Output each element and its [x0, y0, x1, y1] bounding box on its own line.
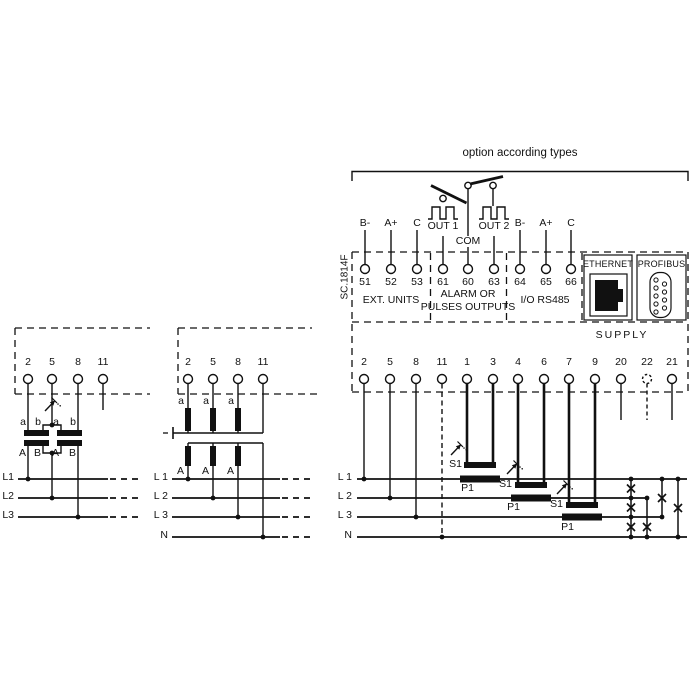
io-label-out2: OUT 2 — [479, 221, 510, 232]
rj45-icon — [595, 280, 623, 311]
io-label-b-minus-rs485: B- — [515, 218, 526, 229]
wiring-diagram-page: option according types SC.1814F B- A+ C … — [0, 0, 700, 700]
section-label-profibus: PROFIBUS — [638, 260, 686, 269]
d2-line-l3: L 3 — [144, 510, 168, 521]
diagram-linework — [0, 0, 700, 700]
section-label-ext-units: EXT. UNITS — [363, 295, 420, 306]
terminal-number-4: 4 — [515, 357, 521, 368]
junction-dots — [26, 423, 681, 540]
terminal-number-53: 53 — [411, 277, 423, 288]
line-label-l2-main: L 2 — [328, 491, 352, 502]
io-label-com: COM — [454, 236, 483, 247]
transformer-winding-bar — [185, 408, 241, 431]
line-label-n-main: N — [328, 530, 352, 541]
fuse-icon — [627, 485, 682, 532]
terminal-number-22: 22 — [641, 357, 653, 368]
terminal-number-7: 7 — [566, 357, 572, 368]
d1-terminal-5: 5 — [49, 357, 55, 368]
terminal-number-2: 2 — [361, 357, 367, 368]
terminal-circles-top — [361, 265, 576, 274]
d2-terminal-5: 5 — [210, 357, 216, 368]
d2-pri-a3: A — [220, 466, 234, 477]
terminal-number-64: 64 — [514, 277, 526, 288]
terminal-number-8: 8 — [413, 357, 419, 368]
d2-sec-a1: a — [170, 396, 184, 407]
ct1-s1-label: S1 — [440, 459, 462, 470]
section-label-supply: SUPPLY — [596, 330, 649, 341]
line-label-l3-main: L 3 — [328, 510, 352, 521]
section-label-alarm-2: PULSES OUTPUTS — [421, 302, 516, 313]
transformer-winding-bar — [24, 430, 82, 446]
io-label-b-minus-ext: B- — [360, 218, 371, 229]
terminal-number-6: 6 — [541, 357, 547, 368]
terminal-number-66: 66 — [565, 277, 577, 288]
section-label-rs485: I/O RS485 — [520, 295, 569, 306]
terminal-number-52: 52 — [385, 277, 397, 288]
d2-line-l1: L 1 — [144, 472, 168, 483]
ct-windings — [460, 462, 602, 521]
d1-sec-a1: a — [12, 417, 26, 428]
d1-line-l3: L3 — [0, 510, 14, 521]
d2-line-n: N — [144, 530, 168, 541]
terminal-number-61: 61 — [437, 277, 449, 288]
section-label-alarm-1: ALARM OR — [441, 289, 496, 300]
transformer-winding-bar — [185, 446, 241, 466]
io-label-a-plus-rs485: A+ — [539, 218, 552, 229]
earth-tick-icon — [163, 427, 173, 439]
polarity-arrow-icon — [45, 398, 61, 412]
terminal-number-9: 9 — [592, 357, 598, 368]
terminal-number-60: 60 — [462, 277, 474, 288]
d2-pri-a2: A — [195, 466, 209, 477]
d1-sec-b1: b — [27, 417, 41, 428]
terminal-number-5: 5 — [387, 357, 393, 368]
d1-line-l1: L1 — [0, 472, 14, 483]
io-label-c-rs485: C — [567, 218, 575, 229]
terminal-number-20: 20 — [615, 357, 627, 368]
d1-sec-b2: b — [62, 417, 76, 428]
d1-line-l2: L2 — [0, 491, 14, 502]
section-label-ethernet: ETHERNET — [583, 260, 633, 269]
ct3-s1-label: S1 — [541, 499, 563, 510]
d1-pri-b1: B — [27, 448, 41, 459]
d1-terminal-11: 11 — [98, 357, 109, 368]
terminal-number-11: 11 — [437, 357, 448, 368]
polarity-arrow-icon — [451, 442, 467, 456]
io-label-a-plus-ext: A+ — [384, 218, 397, 229]
terminal-circles-bottom — [360, 375, 677, 384]
terminal-leads-bottom — [364, 384, 672, 538]
d2-pri-a1: A — [170, 466, 184, 477]
d2-sec-a2: a — [195, 396, 209, 407]
d2-line-l2: L 2 — [144, 491, 168, 502]
d2-sec-a3: a — [220, 396, 234, 407]
d1-sec-a2: a — [45, 417, 59, 428]
d2-terminal-8: 8 — [235, 357, 241, 368]
line-label-l1-main: L 1 — [328, 472, 352, 483]
terminal-number-21: 21 — [666, 357, 678, 368]
terminal-number-3: 3 — [490, 357, 496, 368]
terminal-number-51: 51 — [359, 277, 371, 288]
terminal-number-1: 1 — [464, 357, 470, 368]
polarity-arrow-icon — [507, 461, 523, 475]
polarity-arrow-icon — [557, 481, 573, 495]
io-label-c-ext: C — [413, 218, 421, 229]
d1-pri-a2: A — [45, 448, 59, 459]
db9-icon — [650, 273, 671, 318]
ct1-p1-label: P1 — [452, 483, 474, 494]
d1-pri-b2: B — [62, 448, 76, 459]
d2-terminal-11: 11 — [258, 357, 269, 368]
pulse-icon-out1 — [428, 207, 458, 219]
option-title: option according types — [462, 148, 577, 160]
terminal-number-65: 65 — [540, 277, 552, 288]
ct2-p1-label: P1 — [498, 502, 520, 513]
fuse-links — [627, 479, 682, 537]
io-label-out1: OUT 1 — [428, 221, 459, 232]
ct2-s1-label: S1 — [490, 479, 512, 490]
model-number: SC.1814F — [340, 254, 351, 299]
option-bracket — [352, 172, 688, 182]
d2-terminal-2: 2 — [185, 357, 191, 368]
ct3-p1-label: P1 — [552, 522, 574, 533]
d1-pri-a1: A — [12, 448, 26, 459]
d1-terminal-2: 2 — [25, 357, 31, 368]
pulse-icon-out2 — [479, 207, 509, 219]
d1-terminal-8: 8 — [75, 357, 81, 368]
terminal-number-63: 63 — [488, 277, 500, 288]
